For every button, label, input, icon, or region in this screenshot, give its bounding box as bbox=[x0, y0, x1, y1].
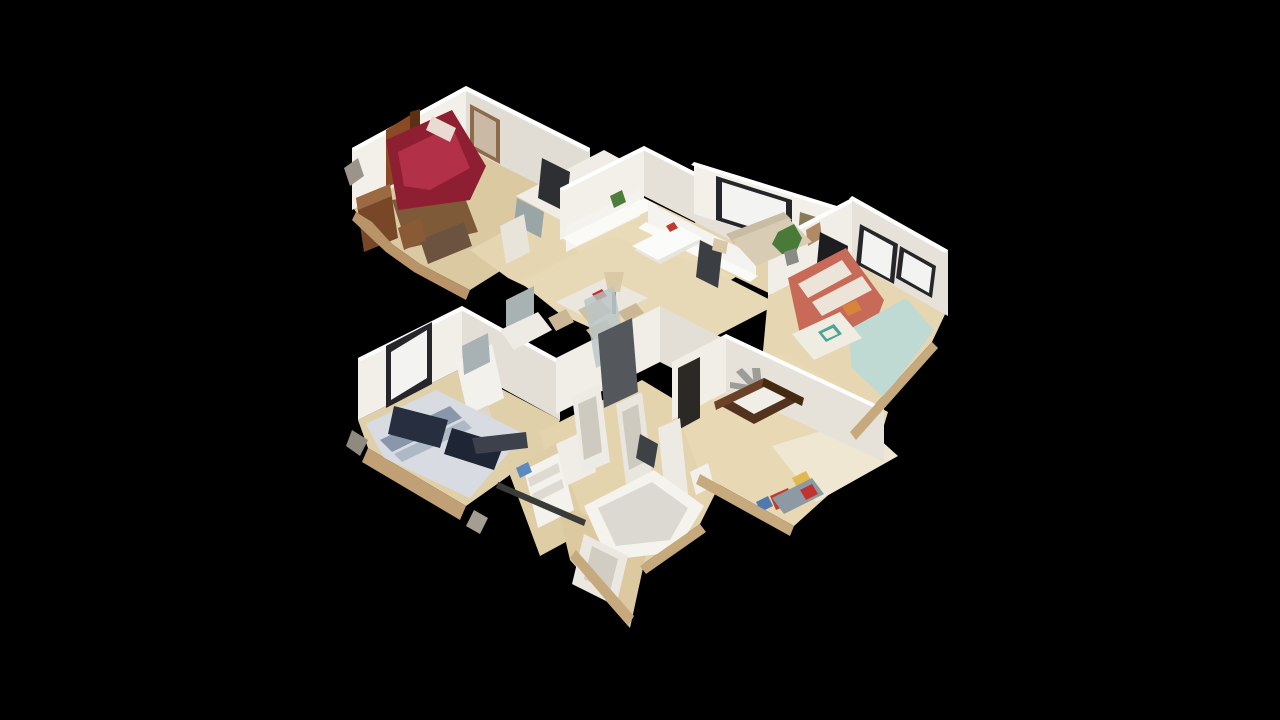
dollhouse-3d-model bbox=[0, 0, 1280, 720]
dollhouse-viewport[interactable] bbox=[0, 0, 1280, 720]
hallbath-shower-marble bbox=[598, 318, 638, 408]
nursery-door-dark bbox=[678, 357, 700, 430]
scan-debris-3 bbox=[466, 510, 488, 534]
